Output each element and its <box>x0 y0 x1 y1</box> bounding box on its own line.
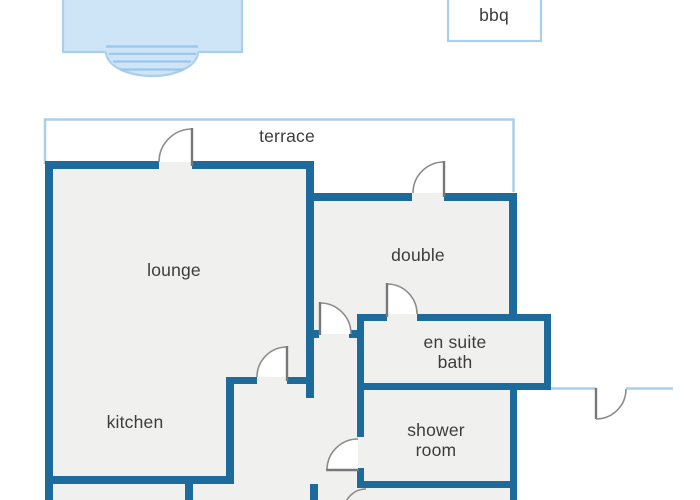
wall-shower-left-upper <box>357 390 364 437</box>
floorplan-page: bbq terrace <box>0 0 700 500</box>
room-label-ensuite-line1: en suite <box>424 332 487 352</box>
bbq-label: bbq <box>479 5 509 25</box>
wall-hall-double-left <box>306 330 319 338</box>
wall-double-right <box>509 193 517 314</box>
building-floor <box>45 161 551 500</box>
wall-lounge-top-right <box>192 161 314 169</box>
wall-stub-below-kitchen <box>185 484 193 500</box>
wall-ensuite-bottom <box>357 383 551 390</box>
wall-ensuite-top-right <box>417 314 551 321</box>
wall-shower-right <box>510 383 517 500</box>
wall-ensuite-left <box>357 314 364 390</box>
wall-kitchen-bottom <box>45 476 232 484</box>
bbq-area: bbq <box>448 0 541 41</box>
wall-left <box>45 161 53 500</box>
wall-stub-below-hall <box>310 484 318 500</box>
wall-ensuite-right <box>544 314 551 390</box>
floorplan-canvas: bbq terrace <box>0 0 700 500</box>
room-label-shower-line1: shower <box>407 420 465 440</box>
room-label-lounge: lounge <box>147 260 201 280</box>
room-label-shower-line2: room <box>416 440 457 460</box>
wall-shower-bottom <box>357 481 517 488</box>
wall-double-top-right <box>444 193 517 201</box>
wall-lounge-top-left <box>45 161 159 169</box>
terrace-label: terrace <box>259 126 315 146</box>
wall-corridor-left <box>226 377 234 484</box>
room-label-ensuite-line2: bath <box>438 352 473 372</box>
room-label-kitchen: kitchen <box>107 412 164 432</box>
pool-basin <box>63 0 242 52</box>
wall-double-top-left <box>306 193 412 201</box>
room-label-double: double <box>391 245 445 265</box>
wall-kitchen-inner-left <box>226 377 257 384</box>
